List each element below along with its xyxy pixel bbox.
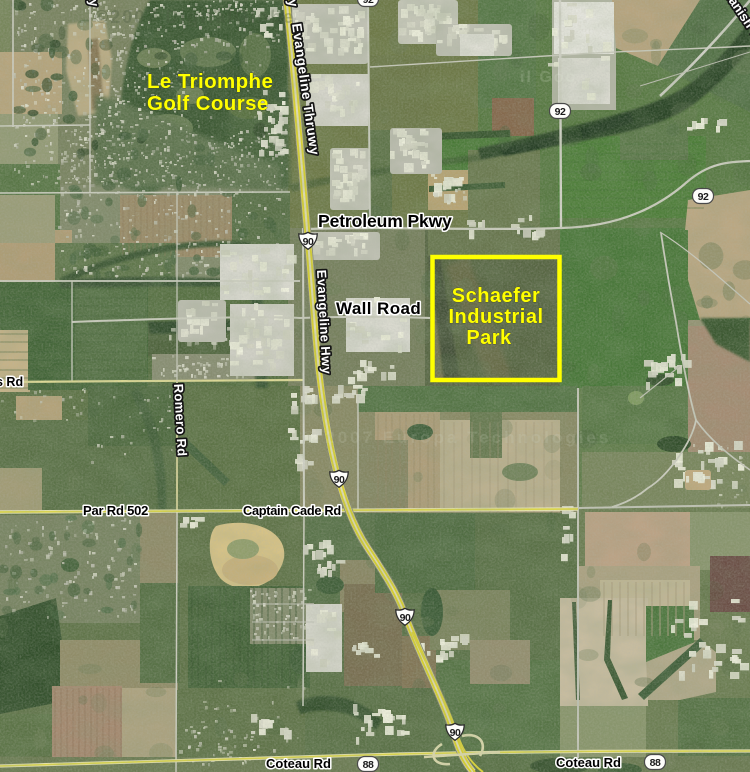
svg-text:92: 92 [555,106,566,118]
svg-text:88: 88 [363,759,374,771]
svg-text:Le Triomphe: Le Triomphe [147,70,273,93]
svg-text:90: 90 [334,474,345,486]
svg-text:Captain Cade Rd: Captain Cade Rd [243,503,341,518]
svg-text:Coteau Rd: Coteau Rd [556,755,621,770]
svg-text:90: 90 [400,612,411,624]
svg-text:Park: Park [466,327,512,349]
svg-text:©2007 DigitalGlobe: ©2007 DigitalGlobe [95,7,295,27]
svg-text:90: 90 [303,236,314,248]
svg-text:il Goo: il Goo [520,69,577,86]
svg-text:Industrial: Industrial [448,306,543,328]
svg-text:92: 92 [363,0,374,6]
svg-text:Petroleum Pkwy: Petroleum Pkwy [318,211,452,231]
svg-text:s Rd: s Rd [0,375,23,389]
svg-text:Schaefer: Schaefer [452,285,541,307]
svg-text:88: 88 [650,757,661,769]
svg-text:© 2007 Europa Technologies: © 2007 Europa Technologies [302,428,611,447]
svg-text:Par Rd 502: Par Rd 502 [83,503,148,518]
svg-text:92: 92 [698,191,709,203]
svg-text:Wall Road: Wall Road [336,299,421,318]
svg-text:Golf Course: Golf Course [147,92,269,115]
svg-text:90: 90 [450,727,461,739]
svg-text:Coteau Rd: Coteau Rd [266,756,331,771]
